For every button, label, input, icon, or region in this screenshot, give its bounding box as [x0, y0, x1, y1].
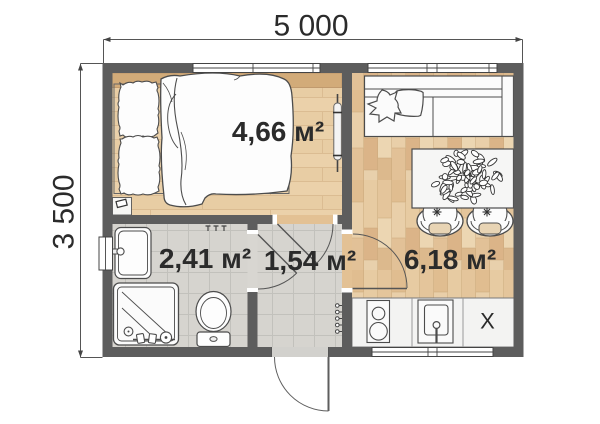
svg-text:2,41 м²: 2,41 м² — [159, 243, 251, 274]
svg-text:4,66 м²: 4,66 м² — [232, 116, 324, 147]
svg-text:3 500: 3 500 — [48, 174, 81, 249]
svg-text:X: X — [480, 309, 495, 334]
svg-text:1,54 м²: 1,54 м² — [264, 245, 356, 276]
svg-text:5 000: 5 000 — [273, 10, 348, 43]
svg-text:6,18 м²: 6,18 м² — [404, 244, 496, 275]
